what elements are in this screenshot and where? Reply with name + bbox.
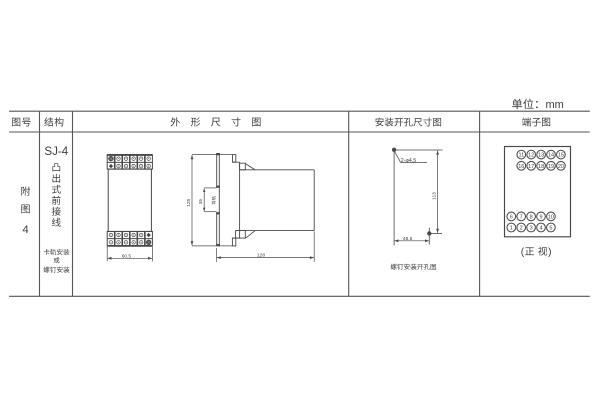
svg-text:9: 9 bbox=[539, 214, 542, 220]
svg-text:1: 1 bbox=[510, 226, 513, 232]
svg-text:15: 15 bbox=[558, 153, 564, 159]
svg-text:13: 13 bbox=[538, 153, 544, 159]
svg-text:2: 2 bbox=[520, 226, 523, 232]
svg-text:4: 4 bbox=[539, 226, 542, 232]
svg-text:128: 128 bbox=[257, 253, 265, 259]
svg-text:SJ-4: SJ-4 bbox=[44, 145, 68, 158]
svg-text:113: 113 bbox=[432, 192, 438, 200]
svg-text:17: 17 bbox=[528, 164, 534, 170]
svg-text:16: 16 bbox=[518, 164, 524, 170]
svg-text:(: ( bbox=[521, 247, 525, 258]
svg-text:7: 7 bbox=[520, 214, 523, 220]
svg-text:19: 19 bbox=[548, 164, 554, 170]
svg-text:4: 4 bbox=[22, 224, 28, 236]
svg-text:): ) bbox=[548, 247, 551, 258]
svg-text:6: 6 bbox=[510, 214, 513, 220]
svg-text:60.5: 60.5 bbox=[122, 254, 132, 260]
svg-text:12: 12 bbox=[528, 153, 534, 159]
svg-text:11: 11 bbox=[518, 153, 524, 159]
svg-text:mm: mm bbox=[546, 99, 564, 111]
svg-text:8: 8 bbox=[530, 214, 533, 220]
svg-text:14: 14 bbox=[548, 153, 554, 159]
svg-text:35: 35 bbox=[198, 199, 203, 205]
svg-text:3: 3 bbox=[530, 226, 533, 232]
svg-text:10: 10 bbox=[548, 214, 554, 220]
svg-text:125: 125 bbox=[186, 198, 192, 206]
svg-text:18: 18 bbox=[538, 164, 544, 170]
svg-text:5: 5 bbox=[549, 226, 552, 232]
svg-text:20: 20 bbox=[558, 164, 564, 170]
svg-text:2-φ4.5: 2-φ4.5 bbox=[401, 158, 416, 164]
svg-text:48.5: 48.5 bbox=[403, 236, 413, 242]
